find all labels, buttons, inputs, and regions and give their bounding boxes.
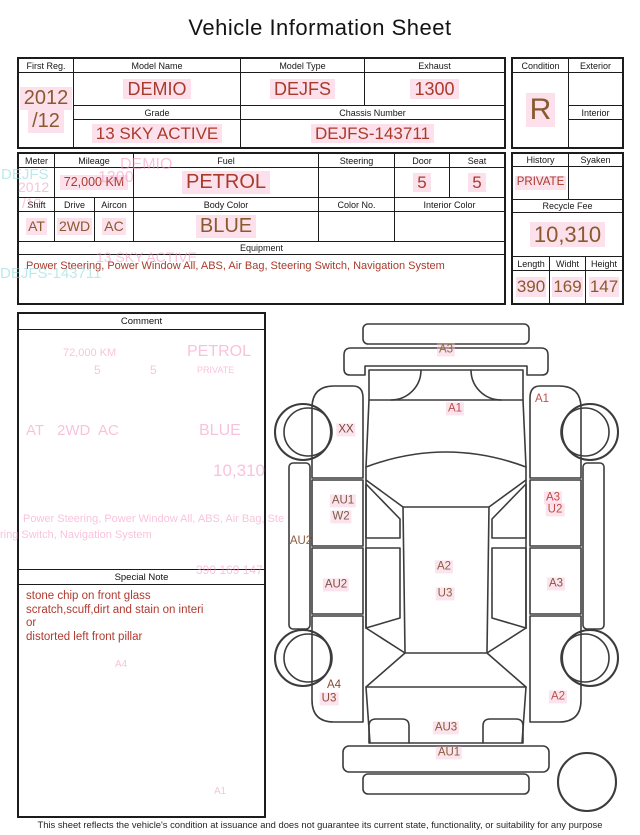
- condition-table: Condition R Exterior Interior: [511, 57, 624, 149]
- spec-table: Meter Mileage Fuel Steering Door Seat 72…: [17, 152, 506, 305]
- chassis-number-text: DEJFS-143711: [311, 124, 434, 144]
- right-sill-shape: [583, 463, 604, 629]
- drive-value: 2WD: [55, 212, 95, 242]
- seat-count-text: 5: [468, 173, 485, 193]
- meter-value: [19, 168, 55, 198]
- shift-value: AT: [19, 212, 55, 242]
- damage-code-label: AU2: [323, 578, 349, 591]
- model-name-text: DEMIO: [123, 79, 190, 100]
- page-title: Vehicle Information Sheet: [0, 15, 640, 41]
- model-name-label: Model Name: [74, 59, 241, 73]
- damage-code-label: W2: [330, 510, 351, 523]
- shift-text: AT: [26, 218, 47, 234]
- rear-left-wheel-inner: [284, 634, 332, 682]
- condition-grade-text: R: [526, 93, 556, 128]
- equipment-value: Power Steering, Power Window All, ABS, A…: [19, 255, 504, 303]
- hatch-right-shoulder-shape: [483, 719, 523, 743]
- mileage-label: Mileage: [55, 154, 134, 168]
- damage-code-label: A3: [437, 343, 455, 356]
- rear-plate-shape: [363, 774, 529, 794]
- interior-color-label: Interior Color: [395, 198, 504, 212]
- damage-code-label: U2: [546, 503, 565, 516]
- damage-code-label: A2: [549, 690, 567, 703]
- body-color-text: BLUE: [196, 215, 256, 238]
- left-c-pillar-line: [366, 628, 405, 653]
- color-no-label: Color No.: [319, 198, 395, 212]
- exterior-label: Exterior: [569, 59, 622, 73]
- body-color-label: Body Color: [134, 198, 319, 212]
- hood-shape: [369, 370, 523, 400]
- aircon-label: Aircon: [95, 198, 134, 212]
- car-damage-diagram: A3A1A1XXAU1W2A3U2AU2AU2A2U3A3A4U3A2AU3AU…: [265, 310, 640, 820]
- interior-color-value: [395, 212, 504, 242]
- damage-code-label: U3: [436, 587, 455, 600]
- mileage-value: 72,000 KM: [55, 168, 134, 198]
- aircon-text: AC: [102, 218, 125, 234]
- vehicle-information-sheet: DEJFSDEMIO13002012/1213 SKY ACTIVEDEJFS-…: [0, 0, 640, 835]
- front-left-wheel-inner: [284, 408, 332, 456]
- door-value: 5: [395, 168, 450, 198]
- syaken-label: Syaken: [569, 154, 622, 167]
- left-rear-window-shape: [366, 548, 400, 628]
- seat-value: 5: [450, 168, 504, 198]
- special-note-text: stone chip on front glass scratch,scuff,…: [19, 586, 264, 648]
- rear-right-fender-shape: [530, 616, 581, 722]
- model-type-text: DEJFS: [270, 79, 335, 100]
- recycle-fee-value: 10,310: [513, 213, 622, 257]
- cowl-left-line: [366, 400, 369, 467]
- seat-label: Seat: [450, 154, 504, 168]
- height-label: Height: [586, 257, 622, 271]
- steering-label: Steering: [319, 154, 395, 168]
- rear-window-shape: [366, 653, 526, 687]
- damage-code-label: A1: [446, 402, 464, 415]
- mileage-text: 72,000 KM: [60, 175, 128, 189]
- shift-label: Shift: [19, 198, 55, 212]
- grade-text: 13 SKY ACTIVE: [92, 124, 223, 144]
- history-table: History Syaken PRIVATE Recycle Fee 10,31…: [511, 152, 624, 305]
- damage-code-label: A2: [435, 560, 453, 573]
- widht-text: 169: [552, 277, 582, 297]
- comment-header: Comment: [19, 314, 264, 330]
- special-note-line: or: [26, 617, 257, 631]
- length-value: 390: [513, 271, 550, 303]
- equipment-label: Equipment: [19, 242, 504, 255]
- special-note-header: Special Note: [19, 569, 264, 585]
- first-reg-month: /12: [28, 110, 64, 133]
- exhaust-value: 1300: [365, 73, 504, 106]
- body-color-value: BLUE: [134, 212, 319, 242]
- interior-label: Interior: [569, 106, 622, 120]
- height-text: 147: [589, 277, 619, 297]
- damage-code-label: AU2: [290, 535, 312, 547]
- damage-code-label: A4: [327, 679, 341, 691]
- damage-code-label: U3: [320, 692, 339, 705]
- chassis-number-value: DEJFS-143711: [241, 120, 504, 147]
- height-value: 147: [586, 271, 622, 303]
- rear-left-fender-shape: [312, 616, 363, 722]
- first-reg-year: 2012: [20, 87, 73, 110]
- fuel-text: PETROL: [182, 171, 270, 194]
- damage-code-label: AU3: [433, 721, 459, 734]
- model-name-value: DEMIO: [74, 73, 241, 106]
- color-no-value: [319, 212, 395, 242]
- damage-code-label: A3: [547, 577, 565, 590]
- model-type-label: Model Type: [241, 59, 365, 73]
- meter-label: Meter: [19, 154, 55, 168]
- interior-value: [569, 120, 622, 147]
- exterior-value: [569, 73, 622, 106]
- roof-right-edge: [487, 507, 489, 652]
- notes-box: Comment Special Note stone chip on front…: [17, 312, 266, 818]
- special-note-line: stone chip on front glass: [26, 590, 257, 604]
- disclaimer-text: This sheet reflects the vehicle's condit…: [0, 819, 640, 830]
- front-right-wheel-inner: [561, 408, 609, 456]
- damage-code-label: XX: [336, 423, 355, 436]
- length-text: 390: [516, 277, 546, 297]
- recycle-fee-label: Recycle Fee: [513, 200, 622, 213]
- history-label: History: [513, 154, 569, 167]
- front-plate-shape: [363, 324, 529, 344]
- door-label: Door: [395, 154, 450, 168]
- history-value: PRIVATE: [513, 167, 569, 200]
- chassis-number-label: Chassis Number: [241, 106, 504, 120]
- aircon-value: AC: [95, 212, 134, 242]
- history-text: PRIVATE: [515, 176, 567, 189]
- condition-label: Condition: [513, 59, 569, 73]
- special-note-line: scratch,scuff,dirt and stain on interi: [26, 604, 257, 618]
- windshield-shape: [366, 452, 526, 507]
- first-reg-label: First Reg.: [19, 59, 74, 73]
- damage-code-label: A1: [535, 393, 549, 405]
- cowl-right-line: [523, 400, 526, 467]
- damage-code-label: AU1: [436, 746, 462, 759]
- right-c-pillar-line: [487, 628, 526, 653]
- widht-value: 169: [550, 271, 586, 303]
- grade-value: 13 SKY ACTIVE: [74, 120, 241, 147]
- right-rear-window-shape: [492, 548, 526, 628]
- syaken-value: [569, 167, 622, 200]
- widht-label: Widht: [550, 257, 586, 271]
- hood-right-arch: [471, 370, 501, 400]
- damage-code-label: AU1: [330, 494, 356, 507]
- recycle-fee-text: 10,310: [530, 222, 605, 247]
- fuel-label: Fuel: [134, 154, 319, 168]
- door-count-text: 5: [413, 173, 430, 193]
- hood-left-arch: [391, 370, 421, 400]
- comment-area: [19, 330, 264, 570]
- model-info-table: First Reg. 2012 /12 Model Name DEMIO Mod…: [17, 57, 506, 149]
- roof-left-edge: [403, 507, 405, 652]
- spare-tire: [558, 753, 616, 811]
- exhaust-text: 1300: [410, 79, 458, 100]
- special-note-line: distorted left front pillar: [26, 631, 257, 645]
- drive-text: 2WD: [57, 218, 92, 234]
- length-label: Length: [513, 257, 550, 271]
- hatch-left-shoulder-shape: [369, 719, 409, 743]
- drive-label: Drive: [55, 198, 95, 212]
- model-type-value: DEJFS: [241, 73, 365, 106]
- grade-label: Grade: [74, 106, 241, 120]
- condition-value: R: [513, 73, 569, 147]
- fuel-value: PETROL: [134, 168, 319, 198]
- rear-right-wheel-inner: [561, 634, 609, 682]
- first-reg-value: 2012 /12: [19, 73, 74, 147]
- steering-value: [319, 168, 395, 198]
- exhaust-label: Exhaust: [365, 59, 504, 73]
